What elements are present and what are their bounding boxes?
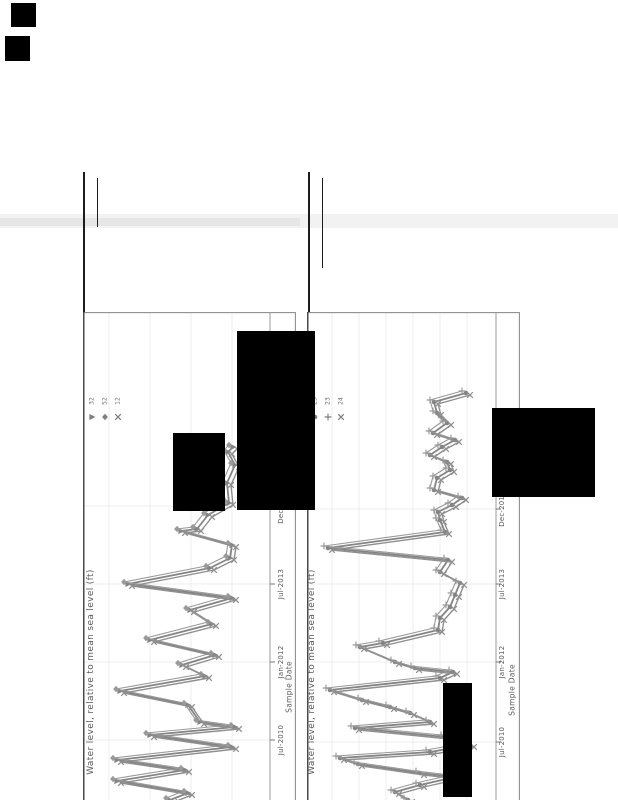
date-tick-label: Jul-2013: [277, 569, 285, 599]
date-tick-label: Jul-2010: [277, 725, 285, 755]
vertical-rule: [308, 172, 310, 312]
left-chart-value-axis-title: Water level, relative to mean sea level …: [86, 569, 96, 775]
date-tick-label: Jan-2012: [277, 646, 285, 679]
redaction-box: [492, 408, 595, 497]
legend-label: 32: [89, 397, 96, 405]
date-tick-label: Jul-2010: [498, 727, 506, 757]
right-chart-value-axis-title: Water level, relative to mean sea level …: [307, 569, 317, 775]
redaction-box: [11, 3, 36, 27]
right-hydrograph-chart: [307, 312, 520, 800]
legend-markers: [313, 414, 344, 421]
date-tick-label: Jul-2013: [498, 569, 506, 599]
redaction-box: [5, 36, 30, 61]
vertical-rule: [97, 178, 98, 227]
vertical-rule: [83, 172, 85, 312]
scanned-document-page: Water level, relative to mean sea level …: [0, 0, 618, 800]
legend-markers: [89, 414, 120, 421]
redaction-box: [443, 683, 472, 797]
redaction-box: [173, 433, 225, 511]
redaction-box: [237, 331, 315, 510]
scan-gray-band-left: [0, 218, 300, 226]
right-chart-date-axis-title: Sample Date: [508, 664, 517, 716]
legend-label: 24: [338, 397, 345, 405]
vertical-rule: [322, 178, 323, 268]
left-chart-date-axis-title: Sample Date: [285, 661, 294, 713]
legend-label: 12: [115, 397, 122, 405]
date-tick-label: Jan-2012: [498, 646, 506, 679]
legend-label: 23: [325, 397, 332, 405]
legend-label: 52: [102, 397, 109, 405]
